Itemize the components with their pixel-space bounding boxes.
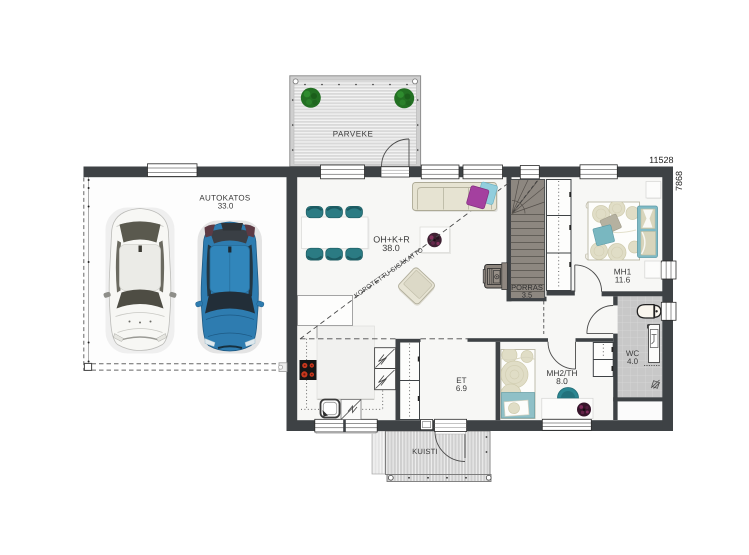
svg-text:PARVEKE: PARVEKE <box>333 130 374 139</box>
svg-text:33.0: 33.0 <box>218 202 234 211</box>
svg-text:KUISTI: KUISTI <box>412 447 438 456</box>
svg-text:38.0: 38.0 <box>382 243 400 253</box>
svg-text:6.9: 6.9 <box>456 384 468 393</box>
svg-text:11528: 11528 <box>649 155 673 165</box>
svg-text:7868: 7868 <box>674 171 684 191</box>
svg-text:4.0: 4.0 <box>627 357 639 366</box>
svg-text:11.6: 11.6 <box>615 275 631 285</box>
svg-text:8.0: 8.0 <box>556 376 568 386</box>
svg-text:3.5: 3.5 <box>522 291 532 300</box>
